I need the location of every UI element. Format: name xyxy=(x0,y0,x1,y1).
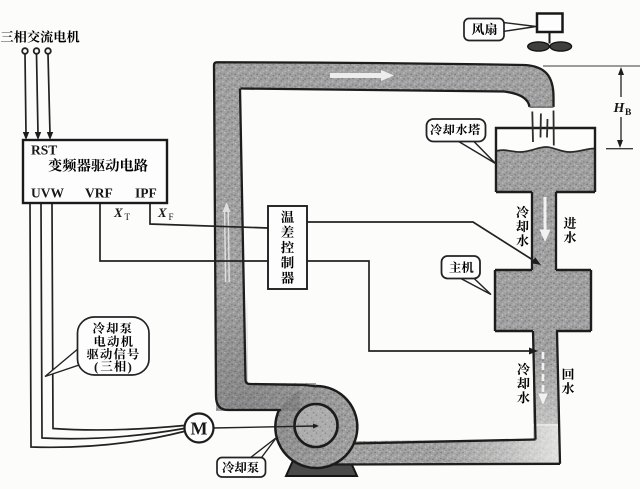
svg-text:VRF: VRF xyxy=(85,186,113,201)
svg-text:X: X xyxy=(113,205,123,220)
svg-text:F: F xyxy=(169,212,174,222)
svg-text:H: H xyxy=(613,101,626,116)
svg-text:IPF: IPF xyxy=(135,186,157,201)
svg-text:UVW: UVW xyxy=(31,186,64,201)
svg-text:M: M xyxy=(191,419,208,439)
svg-text:RST: RST xyxy=(31,143,57,158)
svg-text:B: B xyxy=(625,108,632,118)
svg-text:(: ( xyxy=(94,359,98,374)
svg-text:): ) xyxy=(128,359,132,374)
svg-text:T: T xyxy=(125,212,131,222)
svg-text:X: X xyxy=(157,205,167,220)
